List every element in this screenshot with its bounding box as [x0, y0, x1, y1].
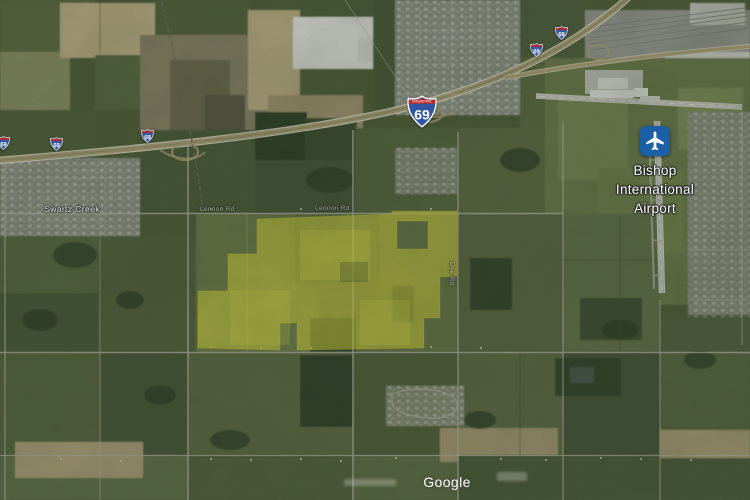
airplane-icon	[640, 126, 670, 156]
terrain-grain	[0, 0, 750, 500]
map-viewport[interactable]: INTERSTATE 69 69 69 69 69	[0, 0, 750, 500]
satellite-canvas[interactable]	[0, 0, 750, 500]
google-watermark[interactable]: Google	[405, 474, 489, 490]
